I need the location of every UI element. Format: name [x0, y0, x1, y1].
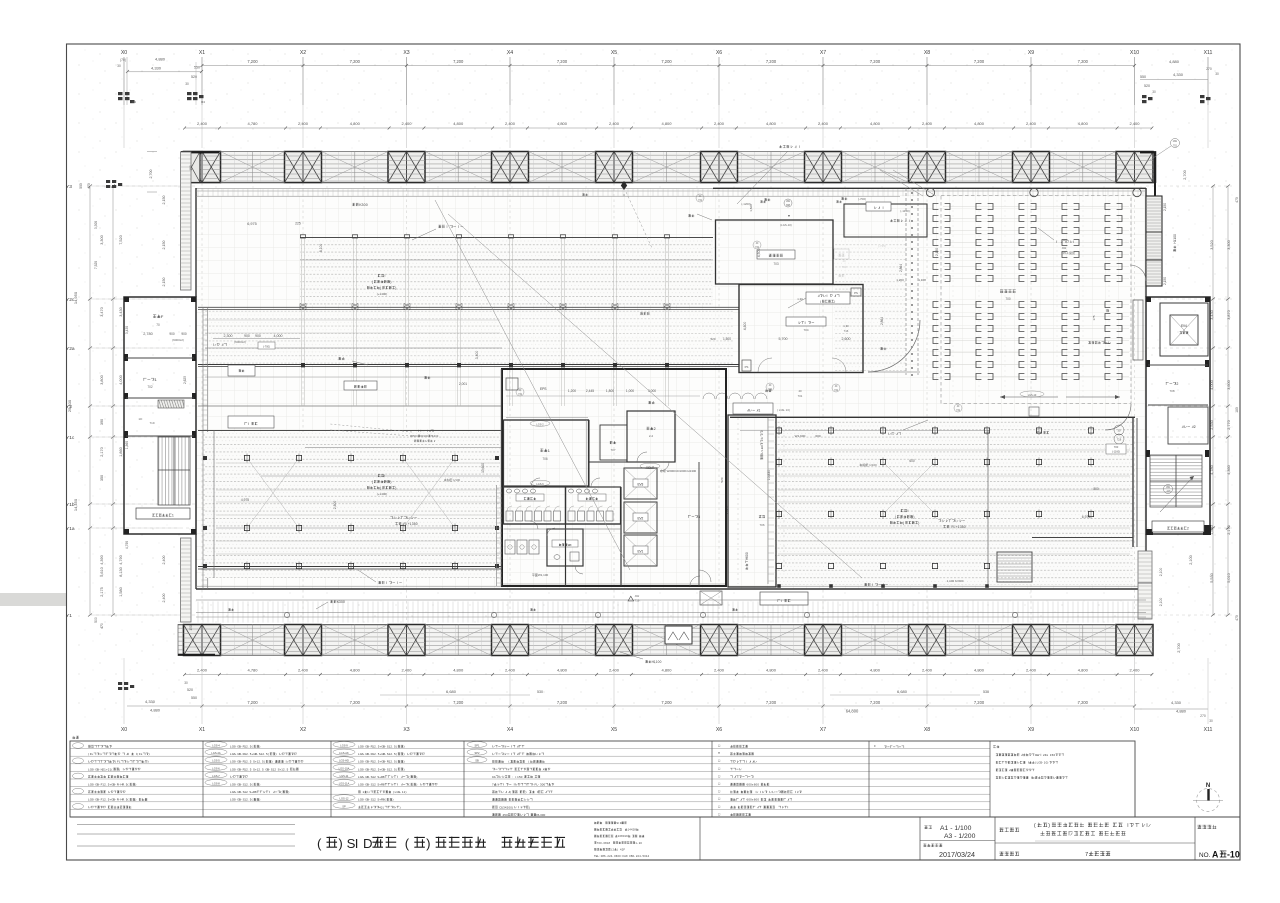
svg-text:2,400: 2,400	[505, 121, 516, 126]
svg-text:30: 30	[184, 681, 188, 685]
svg-text:4,780: 4,780	[247, 121, 258, 126]
svg-text:X3: X3	[403, 50, 409, 56]
svg-text:(-700): (-700)	[263, 345, 270, 349]
svg-text:): )	[529, 805, 530, 809]
svg-text:30: 30	[1152, 90, 1156, 94]
svg-text:900: 900	[244, 334, 250, 338]
svg-text:(: (	[111, 767, 112, 771]
svg-text:(: (	[252, 745, 253, 749]
svg-text:270: 270	[1200, 714, 1206, 718]
svg-text:!: !	[384, 474, 385, 478]
svg-text:520: 520	[720, 477, 724, 482]
svg-text:1: 1	[172, 514, 174, 518]
svg-text:7,200: 7,200	[350, 59, 361, 64]
svg-text:700: 700	[1005, 297, 1011, 301]
svg-text:X4: X4	[507, 50, 513, 56]
svg-text:(+1400): (+1400)	[377, 492, 387, 496]
svg-text:7,200: 7,200	[453, 59, 464, 64]
svg-text:0: 0	[366, 203, 368, 207]
svg-text:2,700: 2,700	[1183, 170, 1187, 180]
svg-text:平面W1,100: 平面W1,100	[532, 573, 549, 577]
svg-text:AW: AW	[635, 594, 640, 598]
svg-text:(-700): (-700)	[858, 197, 866, 201]
svg-text:7,200: 7,200	[1078, 700, 1089, 705]
svg-text:X6: X6	[716, 50, 722, 56]
svg-text:(6000x2): (6000x2)	[172, 338, 184, 342]
svg-text:): )	[276, 752, 277, 756]
svg-text:4,000: 4,000	[274, 334, 283, 338]
svg-text:4,000: 4,000	[119, 375, 123, 385]
svg-text:X8: X8	[924, 50, 930, 56]
svg-text:14,450: 14,450	[73, 498, 78, 511]
svg-text:4,800: 4,800	[557, 121, 568, 126]
svg-text:2,400: 2,400	[298, 668, 309, 673]
svg-text:3,300: 3,300	[100, 235, 104, 245]
svg-text:): )	[404, 752, 405, 756]
svg-text:): )	[390, 480, 391, 484]
svg-text:4,975: 4,975	[241, 498, 249, 502]
svg-text:-10: -10	[1227, 850, 1240, 860]
svg-text:8,130: 8,130	[119, 567, 123, 577]
svg-text:!: !	[907, 509, 908, 513]
svg-text:1,800: 1,800	[606, 389, 614, 393]
svg-text:D: D	[620, 821, 622, 825]
svg-text:2: 2	[1176, 382, 1178, 386]
svg-text:3,520: 3,520	[1210, 240, 1214, 250]
svg-text:LGS-11: LGS-11	[340, 774, 349, 778]
svg-text:390: 390	[100, 419, 104, 425]
svg-text:2,150: 2,150	[162, 278, 166, 287]
svg-text:X8: X8	[924, 727, 930, 733]
svg-text:X10: X10	[1130, 50, 1139, 56]
svg-text:F: F	[874, 744, 876, 748]
svg-text:150: 150	[189, 625, 193, 631]
svg-text:3,300: 3,300	[1227, 240, 1231, 250]
svg-text:800: 800	[1093, 487, 1099, 491]
svg-text:(: (	[528, 760, 529, 764]
svg-text:X5: X5	[611, 50, 617, 56]
svg-text:708: 708	[1169, 389, 1174, 393]
svg-text:4,800: 4,800	[743, 322, 747, 331]
svg-text:2,400: 2,400	[401, 121, 412, 126]
svg-text:A: A	[1212, 850, 1219, 860]
svg-text:7,200: 7,200	[557, 59, 568, 64]
svg-text:4,800: 4,800	[974, 668, 985, 673]
svg-text:1: 1	[155, 378, 157, 382]
svg-text:X6: X6	[716, 727, 722, 733]
svg-text:7,520: 7,520	[119, 235, 123, 245]
svg-text:R4: R4	[132, 100, 136, 104]
svg-text:530: 530	[537, 690, 543, 694]
svg-text:X7: X7	[820, 50, 826, 56]
svg-text:1,200: 1,200	[896, 278, 904, 282]
svg-text:X5: X5	[611, 727, 617, 733]
svg-text:2,600: 2,600	[842, 337, 851, 341]
svg-text:7,200: 7,200	[974, 59, 985, 64]
svg-text:2,770: 2,770	[1227, 420, 1231, 430]
svg-text:2: 2	[641, 517, 643, 521]
svg-text:X4: X4	[507, 727, 513, 733]
svg-text:2,400: 2,400	[714, 121, 725, 126]
svg-text:): )	[416, 783, 417, 787]
svg-text:2,700: 2,700	[149, 170, 153, 179]
svg-text:LGS-5: LGS-5	[212, 759, 220, 763]
svg-text:4,800: 4,800	[661, 668, 672, 673]
svg-text:6,680: 6,680	[446, 689, 457, 694]
svg-text:2,445: 2,445	[586, 389, 594, 393]
svg-text:SB: SB	[475, 759, 479, 763]
svg-text:Y1a: Y1a	[66, 526, 75, 532]
svg-text:706: 706	[542, 457, 548, 461]
svg-text:2,700: 2,700	[1177, 643, 1181, 653]
svg-text:2: 2	[1187, 527, 1189, 531]
svg-text:550: 550	[194, 66, 200, 70]
svg-text:(-1160): (-1160)	[1112, 450, 1120, 454]
svg-text:(: (	[252, 798, 253, 802]
svg-text:3,300: 3,300	[94, 221, 98, 229]
svg-text:4,800: 4,800	[870, 121, 881, 126]
svg-text:2,175: 2,175	[1227, 525, 1231, 535]
svg-text:30: 30	[1215, 72, 1219, 76]
svg-text:719: 719	[149, 421, 154, 425]
svg-text:4,800: 4,800	[766, 668, 777, 673]
svg-text:2,780: 2,780	[143, 332, 153, 336]
svg-text:13,600: 13,600	[481, 463, 485, 473]
svg-text:10: 10	[138, 417, 142, 421]
svg-text:4,330: 4,330	[151, 66, 162, 71]
svg-text:900: 900	[255, 334, 261, 338]
svg-text:LGS-10A: LGS-10A	[339, 766, 350, 770]
svg-text:4,500: 4,500	[757, 249, 761, 258]
svg-text:(: (	[820, 300, 821, 304]
svg-text:5,010: 5,010	[1227, 573, 1231, 583]
svg-text:): )	[404, 760, 405, 764]
svg-text:0: 0	[1173, 234, 1177, 236]
svg-text:): )	[395, 286, 396, 290]
svg-text:520: 520	[710, 337, 715, 341]
svg-text:350: 350	[100, 475, 104, 481]
svg-text:7,200: 7,200	[557, 700, 568, 705]
svg-text:4,800: 4,800	[453, 668, 464, 673]
svg-text:701: 701	[798, 394, 803, 398]
svg-text:(: (	[128, 783, 129, 787]
svg-text:(: (	[405, 836, 410, 851]
svg-text:): )	[259, 798, 260, 802]
svg-text:1: 1	[759, 409, 761, 413]
svg-text:本勾配 1/100: 本勾配 1/100	[444, 478, 461, 482]
svg-text:30: 30	[185, 82, 189, 86]
svg-text:LGS-6: LGS-6	[212, 766, 220, 770]
svg-text:X9: X9	[1028, 727, 1034, 733]
svg-text:2,400: 2,400	[818, 668, 829, 673]
svg-text:2,400: 2,400	[401, 668, 412, 673]
svg-text:703: 703	[773, 262, 779, 266]
svg-text:X1: X1	[199, 50, 205, 56]
svg-text:): )	[119, 767, 120, 771]
svg-text:5,610: 5,610	[100, 567, 104, 577]
svg-text:X3: X3	[403, 727, 409, 733]
svg-text:): )	[400, 805, 401, 809]
svg-text:▼: ▼	[787, 214, 790, 218]
svg-text:7,200: 7,200	[247, 700, 258, 705]
svg-text:719: 719	[635, 599, 640, 603]
svg-text:PS: PS	[854, 291, 858, 295]
svg-text:7,200: 7,200	[766, 700, 777, 705]
svg-text:4,390: 4,390	[100, 555, 104, 565]
svg-text:30: 30	[1209, 719, 1213, 723]
svg-text:X7: X7	[820, 727, 826, 733]
svg-text:2,400: 2,400	[609, 668, 620, 673]
svg-text:1: 1	[641, 550, 643, 554]
svg-text:4,330: 4,330	[1171, 700, 1182, 705]
svg-text:N: N	[1206, 783, 1210, 789]
svg-text:7,200: 7,200	[870, 59, 881, 64]
svg-text:368: 368	[786, 204, 791, 207]
svg-text:4,800: 4,800	[661, 121, 672, 126]
svg-text:LGS-6: LGS-6	[536, 483, 544, 486]
svg-text:470: 470	[1235, 197, 1239, 203]
svg-text:3,470: 3,470	[100, 307, 104, 317]
svg-text:): )	[395, 486, 396, 490]
svg-text:225: 225	[295, 222, 301, 226]
svg-text:6,680: 6,680	[897, 689, 908, 694]
svg-text:40: 40	[798, 389, 802, 393]
svg-text:AW: AW	[1062, 246, 1067, 250]
svg-text:3,600: 3,600	[1227, 380, 1231, 390]
svg-text:1: 1	[548, 449, 550, 453]
svg-text:4,800: 4,800	[1078, 668, 1089, 673]
svg-text:6,975: 6,975	[1082, 515, 1091, 519]
svg-text:4,800: 4,800	[974, 121, 985, 126]
svg-text:705-4 開閉: 705-4 開閉	[1061, 251, 1075, 255]
svg-text:): )	[259, 783, 260, 787]
svg-text:▼: ▼	[718, 751, 721, 755]
svg-text:): )	[135, 783, 136, 787]
svg-text:2,170: 2,170	[100, 447, 104, 457]
svg-text:702: 702	[147, 385, 153, 389]
svg-text:1,30: 1,30	[797, 297, 803, 301]
svg-text:4,800: 4,800	[350, 668, 361, 673]
svg-text:180: 180	[1235, 407, 1239, 413]
svg-text:): )	[913, 515, 914, 519]
svg-text:2,400: 2,400	[162, 594, 166, 603]
svg-text:7: 7	[1085, 852, 1088, 858]
svg-text:(: (	[252, 783, 253, 787]
svg-text:7,200: 7,200	[766, 59, 777, 64]
svg-text:0: 0	[964, 525, 966, 529]
svg-text:PS: PS	[745, 365, 749, 369]
svg-text:25,400: 25,400	[67, 399, 72, 412]
svg-text:): )	[288, 790, 289, 794]
svg-text:470: 470	[87, 183, 91, 189]
svg-text:W: W	[1037, 753, 1040, 757]
svg-text:R4: R4	[201, 100, 205, 104]
svg-text:-113: -113	[1166, 490, 1171, 493]
svg-text:(: (	[508, 760, 509, 764]
svg-text:D: D	[760, 445, 764, 447]
svg-text:LGS-4: LGS-4	[212, 744, 220, 748]
svg-text:2,001: 2,001	[459, 382, 467, 386]
svg-text:(: (	[396, 752, 397, 756]
svg-text:7,200: 7,200	[247, 59, 258, 64]
svg-text:3,400: 3,400	[475, 351, 479, 360]
svg-text:2,400: 2,400	[922, 668, 933, 673]
svg-text:8,100: 8,100	[319, 244, 323, 253]
svg-text:): )	[405, 790, 406, 794]
svg-text:2,800: 2,800	[333, 501, 337, 510]
svg-text:3: 3	[641, 483, 643, 487]
svg-text:SP: SP	[342, 804, 346, 808]
svg-text:716: 716	[844, 329, 849, 333]
svg-text:4,800: 4,800	[453, 121, 464, 126]
svg-text:2,400: 2,400	[298, 121, 309, 126]
svg-text:(: (	[268, 752, 269, 756]
svg-text:1,580: 1,580	[119, 587, 123, 597]
svg-text:X11: X11	[1204, 50, 1213, 56]
svg-text:706: 706	[759, 523, 764, 527]
svg-text:270: 270	[1206, 67, 1212, 71]
svg-text:2,300: 2,300	[224, 334, 233, 338]
svg-text:LGS-4A: LGS-4A	[211, 751, 220, 755]
svg-text:4,780: 4,780	[247, 668, 258, 673]
svg-text:600: 600	[909, 459, 915, 463]
svg-text:4,330: 4,330	[1173, 72, 1184, 77]
svg-text:7,200: 7,200	[1078, 59, 1089, 64]
svg-text:1,168: 1,168	[918, 278, 926, 282]
svg-text:Y1c: Y1c	[66, 435, 75, 441]
svg-text:470: 470	[1235, 615, 1239, 621]
svg-text:(: (	[396, 767, 397, 771]
svg-text:520: 520	[187, 688, 193, 692]
svg-text:I: I	[355, 836, 359, 851]
svg-text:7,200: 7,200	[661, 59, 672, 64]
svg-text:7,200: 7,200	[661, 700, 672, 705]
svg-text:LGS-11A: LGS-11A	[339, 782, 350, 786]
svg-text:(: (	[396, 745, 397, 749]
svg-text:): )	[148, 760, 149, 764]
svg-text:4,360: 4,360	[1227, 465, 1231, 475]
svg-text:): )	[416, 775, 417, 779]
svg-text:SP2: SP2	[475, 751, 480, 755]
svg-text:600: 600	[815, 434, 820, 438]
svg-text:LGS-8: LGS-8	[212, 782, 220, 786]
svg-text:3,430: 3,430	[125, 326, 129, 334]
svg-text:2,150: 2,150	[162, 196, 166, 205]
svg-text:): )	[338, 836, 342, 851]
svg-text:2,150: 2,150	[162, 241, 166, 250]
svg-text:1,200: 1,200	[568, 389, 576, 393]
svg-text:1,860: 1,860	[125, 441, 129, 449]
svg-text:): )	[789, 408, 790, 412]
svg-text:W1,600: W1,600	[795, 434, 806, 438]
svg-text:2,100: 2,100	[1159, 598, 1163, 607]
svg-text:1,30: 1,30	[843, 324, 849, 328]
svg-text:(: (	[396, 760, 397, 764]
svg-text:4,880: 4,880	[1169, 59, 1180, 64]
svg-text:3,430: 3,430	[119, 307, 123, 317]
svg-text:2,864: 2,864	[880, 317, 884, 325]
svg-text:X11: X11	[1204, 727, 1213, 733]
svg-text:X10: X10	[1130, 727, 1139, 733]
svg-text:C: C	[570, 543, 572, 547]
svg-text:): )	[272, 760, 273, 764]
svg-text:SP1: SP1	[475, 744, 480, 748]
svg-text:1,000: 1,000	[626, 389, 634, 393]
svg-text:2,864: 2,864	[899, 264, 903, 272]
svg-text:2,150: 2,150	[1163, 277, 1167, 285]
svg-text:2: 2	[1194, 425, 1196, 429]
svg-text:2,400: 2,400	[818, 121, 829, 126]
svg-text:(: (	[280, 790, 281, 794]
svg-text:Y2a: Y2a	[66, 346, 75, 352]
svg-text:(6000x2): (6000x2)	[234, 340, 246, 344]
svg-text:(+1400): (+1400)	[377, 292, 387, 296]
svg-text:4,880: 4,880	[150, 708, 161, 713]
svg-text:3: 3	[698, 515, 700, 519]
svg-text:2,100: 2,100	[1159, 568, 1163, 577]
svg-text:(: (	[317, 836, 322, 851]
svg-text:): )	[135, 798, 136, 802]
svg-text:LGS-2: LGS-2	[536, 423, 544, 426]
svg-text:2,400: 2,400	[609, 121, 620, 126]
svg-text:550: 550	[191, 696, 197, 700]
svg-text:2,400: 2,400	[197, 121, 208, 126]
svg-text:2,400: 2,400	[1026, 121, 1037, 126]
svg-text:LGS-HD: LGS-HD	[339, 759, 349, 763]
svg-text:719: 719	[1117, 438, 1122, 442]
svg-text:): )	[526, 790, 527, 794]
svg-text:704: 704	[803, 328, 808, 332]
svg-text:): )	[834, 300, 835, 304]
svg-text:150: 150	[189, 165, 193, 171]
svg-text:2,100: 2,100	[1189, 555, 1193, 565]
svg-text:X2: X2	[300, 727, 306, 733]
svg-text:LGS-9: LGS-9	[340, 744, 348, 748]
svg-text:4,800: 4,800	[557, 668, 568, 673]
svg-text:700: 700	[1114, 445, 1119, 449]
svg-text:2-2: 2-2	[649, 434, 654, 438]
svg-text:LGS-10: LGS-10	[1028, 394, 1037, 397]
svg-text:(: (	[128, 798, 129, 802]
svg-text:7,200: 7,200	[350, 700, 361, 705]
svg-text:4,800: 4,800	[870, 668, 881, 673]
svg-text:(: (	[408, 775, 409, 779]
svg-text:500: 500	[94, 617, 98, 623]
svg-text:0: 0	[660, 660, 662, 664]
svg-text:2017/03/24: 2017/03/24	[939, 850, 975, 859]
svg-text:): )	[404, 745, 405, 749]
svg-text:D: D	[363, 836, 373, 851]
svg-text:水場 W2000×D1000×H1300: 水場 W2000×D1000×H1300	[660, 468, 697, 473]
svg-text:A3 - 1/200: A3 - 1/200	[944, 833, 976, 840]
svg-text:1,820: 1,820	[749, 204, 753, 212]
svg-text:7,200: 7,200	[974, 700, 985, 705]
svg-text:2,400: 2,400	[1026, 668, 1037, 673]
svg-text:NO.: NO.	[1199, 852, 1211, 859]
svg-text:): )	[1047, 761, 1048, 765]
svg-text:4,790: 4,790	[119, 555, 123, 565]
svg-text:2,400: 2,400	[922, 121, 933, 126]
svg-text:7,200: 7,200	[870, 700, 881, 705]
svg-text:707: 707	[610, 448, 615, 452]
svg-text:900: 900	[169, 332, 175, 336]
svg-text:LGS-7: LGS-7	[212, 774, 220, 778]
svg-text:2,400: 2,400	[714, 668, 725, 673]
svg-text:(LGS-10): (LGS-10)	[780, 223, 792, 227]
svg-text:3,800: 3,800	[100, 375, 104, 385]
svg-text:500: 500	[79, 183, 83, 189]
svg-text:A1 - 1/100: A1 - 1/100	[940, 825, 972, 832]
